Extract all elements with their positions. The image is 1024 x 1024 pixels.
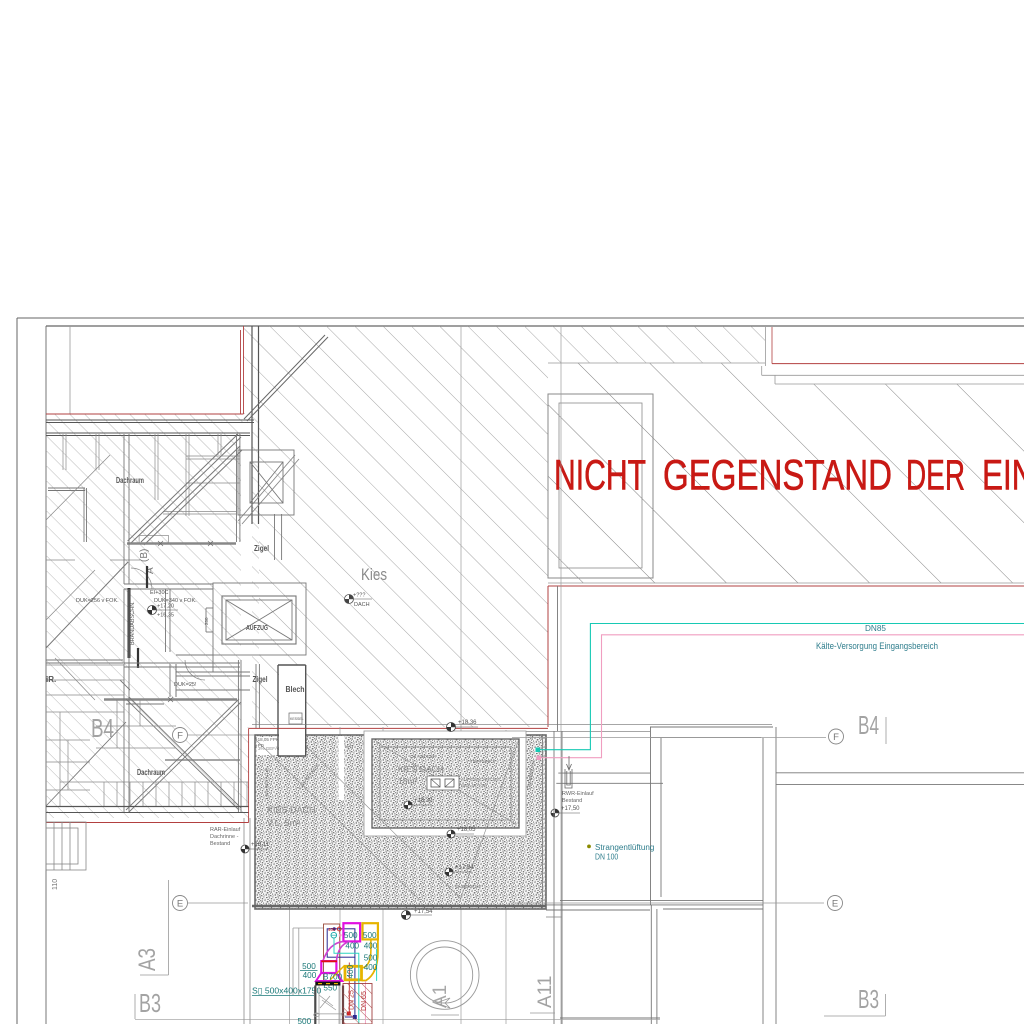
svg-text:(B): (B) (139, 549, 150, 562)
svg-text:Kälte-Versorgung Eingangsberei: Kälte-Versorgung Eingangsbereich (816, 641, 938, 651)
svg-text:18m²: 18m² (398, 776, 418, 786)
svg-text:OK ABDECK: OK ABDECK (410, 754, 436, 759)
svg-text:+17,50: +17,50 (561, 806, 580, 812)
svg-text:A3: A3 (134, 948, 161, 971)
svg-text:EINGABE: EINGABE (982, 452, 1024, 500)
svg-text:DACH: DACH (354, 602, 370, 608)
svg-text:BRANDABSCHN.: BRANDABSCHN. (130, 601, 136, 645)
svg-text:B700: B700 (323, 972, 343, 981)
svg-text:DN 100: DN 100 (595, 852, 619, 861)
svg-text:F: F (177, 731, 183, 742)
svg-text:RWR-Einlauf: RWR-Einlauf (562, 791, 594, 797)
svg-text:Kies: Kies (361, 565, 387, 584)
svg-text:B4: B4 (858, 710, 879, 740)
svg-text:400: 400 (346, 964, 355, 978)
svg-text:KIES DACH: KIES DACH (398, 764, 444, 774)
svg-text:+???: +??? (353, 593, 365, 599)
svg-text:Bestand: Bestand (562, 798, 582, 804)
svg-text:iR.: iR. (46, 675, 56, 684)
svg-text:DN 65: DN 65 (361, 991, 368, 1011)
svg-text:Strangentlüftung: Strangentlüftung (595, 843, 654, 852)
svg-text:EI+30C: EI+30C (150, 590, 169, 596)
svg-text:Dachrinne -: Dachrinne - (210, 834, 239, 840)
svg-text:E: E (177, 899, 183, 910)
svg-text:Zigel: Zigel (253, 675, 268, 684)
svg-text:400: 400 (303, 971, 317, 980)
svg-text:250: 250 (204, 617, 209, 625)
svg-text:+17,94: +17,94 (455, 865, 474, 871)
svg-text:DUK=25!: DUK=25! (174, 682, 197, 688)
svg-text:V.L. 5m²: V.L. 5m² (267, 818, 300, 828)
svg-text:400: 400 (364, 941, 378, 950)
svg-text:S▯ 500x400x1750: S▯ 500x400x1750 (252, 986, 321, 996)
svg-text:500: 500 (363, 931, 377, 940)
svg-text:+18,30: +18,30 (414, 798, 433, 804)
svg-text:DN 25: DN 25 (349, 990, 356, 1010)
svg-text:HAT: HAT (345, 744, 354, 749)
svg-text:500: 500 (298, 1017, 312, 1024)
svg-text:RAR-Einlauf: RAR-Einlauf (210, 827, 241, 833)
svg-text:+18,11: +18,11 (251, 842, 270, 848)
svg-text:E: E (832, 899, 838, 910)
svg-text:KIES DACH: KIES DACH (267, 805, 316, 815)
svg-text:+16,35: +16,35 (157, 613, 174, 619)
svg-text:+18,05: +18,05 (457, 827, 476, 833)
svg-text:400: 400 (345, 941, 359, 950)
svg-text:400: 400 (328, 927, 336, 932)
svg-text:500: 500 (364, 953, 378, 962)
svg-text:+17,54: +17,54 (414, 909, 433, 915)
svg-text:+17,20: +17,20 (157, 604, 174, 610)
svg-text:BLD 4P TGA: BLD 4P TGA (461, 783, 487, 788)
svg-text:KESSEL: KESSEL (290, 717, 304, 721)
svg-text:+18,05 FPKD: +18,05 FPKD (255, 737, 283, 742)
svg-text:Bestand: Bestand (210, 841, 230, 847)
svg-text:NICHT: NICHT (554, 452, 646, 500)
svg-text:400: 400 (364, 963, 378, 972)
svg-text:TIEFPUNKT: TIEFPUNKT (470, 759, 495, 764)
svg-text:DN85: DN85 (865, 623, 886, 633)
svg-text:GEGENSTAND: GEGENSTAND (663, 452, 892, 500)
svg-text:Zigel: Zigel (254, 544, 269, 553)
svg-text:110: 110 (52, 879, 59, 890)
svg-text:DER: DER (906, 452, 965, 500)
svg-text:Dachraum: Dachraum (116, 476, 144, 485)
svg-text:Blech: Blech (286, 685, 305, 694)
svg-text:500: 500 (344, 931, 358, 940)
svg-text:DUK=256 v FOK.: DUK=256 v FOK. (76, 598, 119, 604)
svg-text:500: 500 (302, 962, 316, 971)
svg-text:AUFZUG: AUFZUG (246, 625, 268, 632)
svg-text:B3: B3 (139, 988, 161, 1018)
svg-text:B3: B3 (858, 984, 879, 1014)
svg-text:AUFGESCHÜTTET: AUFGESCHÜTTET (461, 776, 501, 782)
svg-text:+18,36: +18,36 (458, 720, 477, 726)
svg-text:Dachraum: Dachraum (137, 768, 165, 777)
svg-text:F: F (833, 732, 839, 743)
svg-text:1,5% GEFÄLLE: 1,5% GEFÄLLE (263, 768, 269, 800)
svg-text:A11: A11 (535, 976, 556, 1008)
svg-text:1A BERICHT: 1A BERICHT (455, 884, 482, 889)
